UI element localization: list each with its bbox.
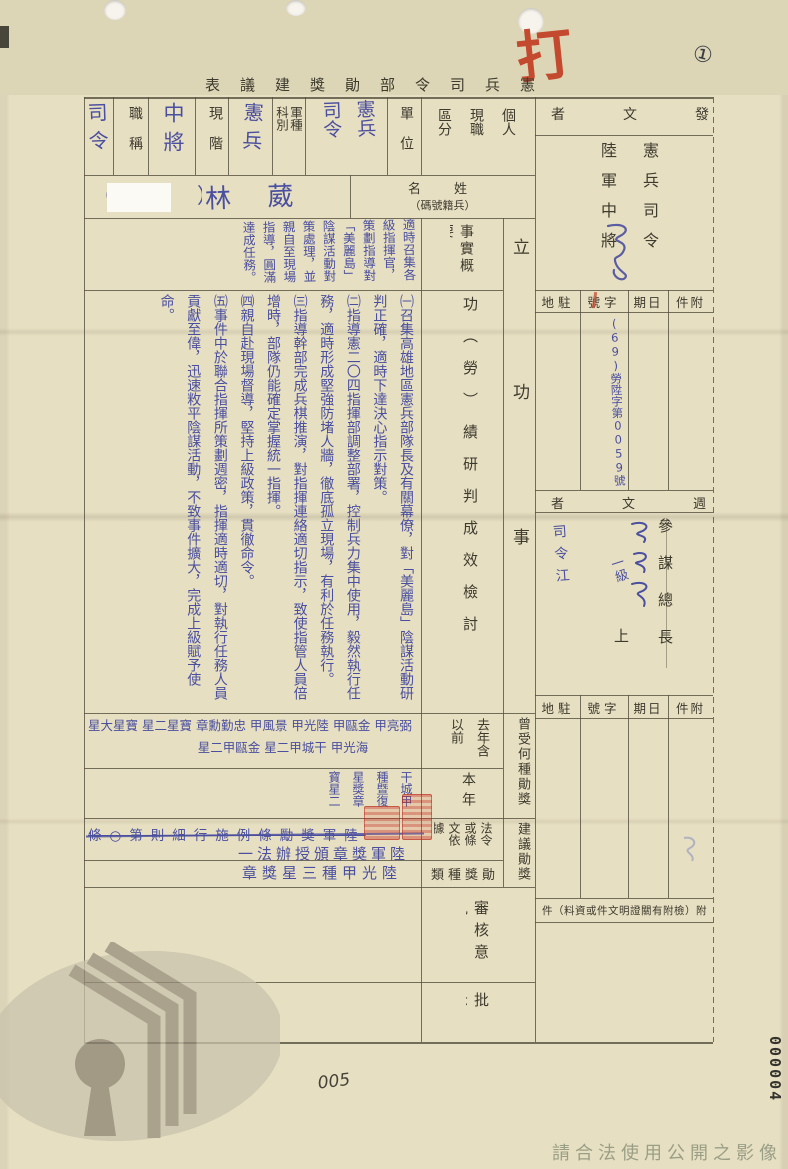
unit-label: 單位 bbox=[392, 106, 416, 172]
copyright-watermark-text: 請合法使用公開之影像 bbox=[552, 1139, 788, 1167]
red-seal-stamp bbox=[402, 794, 432, 840]
sender-date-label: 期日 bbox=[629, 291, 667, 311]
name-value-handwritten: 林 葳 史 bbox=[204, 173, 365, 219]
grid-line bbox=[84, 97, 85, 1042]
name-label: 名 姓 （碼號籍兵） bbox=[352, 178, 533, 216]
red-seal-stamp bbox=[364, 806, 400, 840]
award-type-handwritten: 章獎星三種甲光陸 bbox=[242, 862, 422, 884]
redaction-whiteout bbox=[107, 183, 171, 212]
sender-location-label: 地駐 bbox=[537, 291, 579, 311]
legal-basis-line2-handwritten: 一法辦授頒章獎軍陸 bbox=[238, 843, 422, 863]
grid-line bbox=[84, 290, 503, 291]
this-year-label: 本年 bbox=[452, 772, 478, 816]
name-label-line1: 名 姓 bbox=[352, 178, 533, 197]
grid-line bbox=[535, 135, 713, 136]
meritorious-deeds-label: 立功事蹟 bbox=[508, 238, 532, 708]
reviewer-location-label: 地駐 bbox=[537, 697, 579, 717]
grid-line bbox=[580, 695, 581, 898]
circled-page-index: ① bbox=[689, 41, 725, 77]
grid-line bbox=[84, 97, 713, 99]
archives-watermark-logo bbox=[0, 942, 280, 1169]
grid-line bbox=[535, 512, 713, 513]
grid-line bbox=[668, 290, 669, 490]
grid-line bbox=[503, 218, 504, 887]
grid-line bbox=[421, 97, 422, 175]
proposed-award-label: 建議勛獎 bbox=[510, 822, 532, 885]
grid-line bbox=[84, 768, 503, 769]
previous-years-label: 去年含以前 bbox=[438, 718, 494, 766]
grid-line bbox=[580, 290, 581, 490]
previous-awards-line2: 星二甲甌金 星二甲城干 甲光海 bbox=[88, 737, 418, 759]
sender-attachment-label: 件附 bbox=[669, 291, 712, 311]
branch-value-handwritten: 憲兵 bbox=[234, 101, 268, 172]
grid-line bbox=[535, 312, 713, 313]
approval-remarks-label: 批示 bbox=[466, 992, 492, 1040]
faint-ink-smudge bbox=[680, 834, 702, 864]
grid-line bbox=[84, 218, 535, 219]
awards-received-label: 曾受何種勛獎 bbox=[510, 717, 532, 815]
previous-awards-line1: 星大星寶 星二星寶 章勳勤忠 甲風景 甲光陸 甲甌金 甲亮弼 bbox=[88, 715, 418, 737]
sender-header: 者文發 bbox=[537, 104, 713, 132]
duty-value-handwritten: 司令 bbox=[85, 102, 113, 173]
legal-basis-label: 法令或條文依據 bbox=[434, 822, 494, 856]
grid-line bbox=[535, 97, 536, 1042]
merit-review-handwritten: ㈠召集高雄地區憲兵部隊長及有關幕僚，對「美麗島」陰謀活動研判正確，適時下達決心指… bbox=[88, 294, 419, 709]
grid-line bbox=[387, 97, 388, 175]
award-type-label: 類種獎勛 bbox=[428, 864, 502, 884]
review-opinion-label: 審核意見 bbox=[466, 900, 492, 980]
grid-line bbox=[535, 922, 713, 923]
reviewer-attachment-label: 件附 bbox=[669, 697, 712, 717]
grid-line bbox=[195, 97, 196, 175]
grid-line bbox=[84, 713, 535, 714]
sender-refno-label: 號字 bbox=[581, 291, 627, 311]
merit-review-label: 功（勞）績研判成效檢討 bbox=[455, 296, 481, 710]
grid-line bbox=[713, 97, 714, 1042]
grid-line bbox=[535, 718, 713, 719]
grid-line bbox=[148, 97, 149, 175]
grid-line bbox=[113, 97, 114, 175]
attachment-note: 件（料資或件文明證關有附檢）附 bbox=[537, 899, 712, 921]
name-label-line2: （碼號籍兵） bbox=[352, 197, 533, 213]
previous-awards-handwritten: 星大星寶 星二星寶 章勳勤忠 甲風景 甲光陸 甲甌金 甲亮弼 星二甲甌金 星二甲… bbox=[88, 715, 418, 767]
scanned-award-recommendation-form: 打 ① 表議建獎勛部令司兵憲 司令 職稱 中將 現階 憲兵 軍種科別 憲兵司令部 bbox=[0, 0, 788, 1169]
reviewer-header: 者文週 bbox=[537, 493, 713, 511]
reviewer-signature-scribble bbox=[626, 520, 656, 612]
reviewer-rank-printed: 上將 bbox=[610, 628, 632, 672]
sender-signature-scribble bbox=[598, 220, 646, 282]
duty-label: 職稱 bbox=[117, 106, 145, 172]
edge-mark bbox=[0, 26, 9, 48]
grid-line bbox=[228, 97, 229, 175]
grid-line bbox=[305, 97, 306, 175]
page-number-handwritten: 005 bbox=[317, 1066, 380, 1099]
personal-status-label: 個人現職區分 bbox=[434, 108, 524, 144]
grid-line bbox=[668, 695, 669, 898]
grid-line bbox=[535, 490, 713, 491]
grid-line bbox=[628, 695, 629, 898]
grid-line bbox=[84, 818, 535, 819]
fact-summary-handwritten: 適時召集各級指揮官，策劃指導對「美麗島」陰謀活動對策處理，並親自至現場指導，圓滿… bbox=[87, 218, 418, 290]
grid-line bbox=[421, 218, 422, 1042]
reference-number-handwritten: (69)勞陞字第0059號 bbox=[582, 315, 628, 488]
rank-value-handwritten: 中將 bbox=[158, 102, 188, 172]
grid-line bbox=[84, 887, 535, 888]
grid-line bbox=[628, 290, 629, 490]
fact-summary-label: 事實概要 bbox=[450, 224, 476, 288]
reviewer-date-label: 期日 bbox=[629, 697, 667, 717]
grid-line bbox=[272, 97, 273, 175]
unit-value-handwritten: 憲兵司令部 bbox=[311, 99, 382, 145]
punch-hole bbox=[286, 0, 306, 16]
grid-line bbox=[535, 695, 713, 696]
punch-hole bbox=[104, 0, 126, 20]
reviewer-refno-label: 號字 bbox=[581, 697, 627, 717]
archive-number-stamp: 000004 bbox=[758, 1036, 784, 1146]
form-title: 表議建獎勛部令司兵憲 bbox=[205, 74, 565, 96]
reviewer-side-note-handwritten: 司令江 bbox=[548, 523, 575, 632]
branch-label: 軍種科別 bbox=[276, 106, 302, 138]
rank-label: 現階 bbox=[199, 106, 225, 172]
